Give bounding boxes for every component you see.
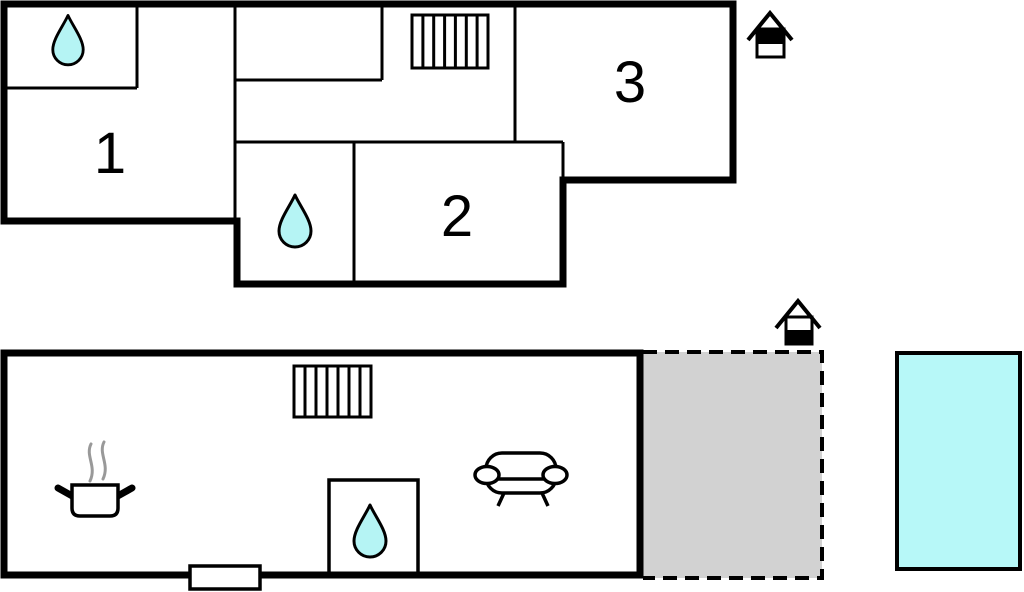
stairs-icon bbox=[294, 366, 371, 417]
room-2-label: 2 bbox=[441, 184, 473, 249]
pool bbox=[897, 353, 1020, 569]
ground-floor-plan bbox=[4, 301, 822, 589]
entrance-door bbox=[190, 566, 260, 589]
terrace bbox=[643, 352, 822, 578]
room-1-label: 1 bbox=[94, 121, 126, 186]
floor-level-indicator-icon bbox=[776, 301, 820, 345]
floor-level-indicator-icon bbox=[748, 13, 792, 57]
stairs-icon bbox=[412, 15, 488, 68]
floor-plan-canvas: 1 2 3 bbox=[0, 0, 1024, 592]
room-3-label: 3 bbox=[614, 50, 646, 115]
upper-floor-plan: 1 2 3 bbox=[4, 4, 792, 284]
